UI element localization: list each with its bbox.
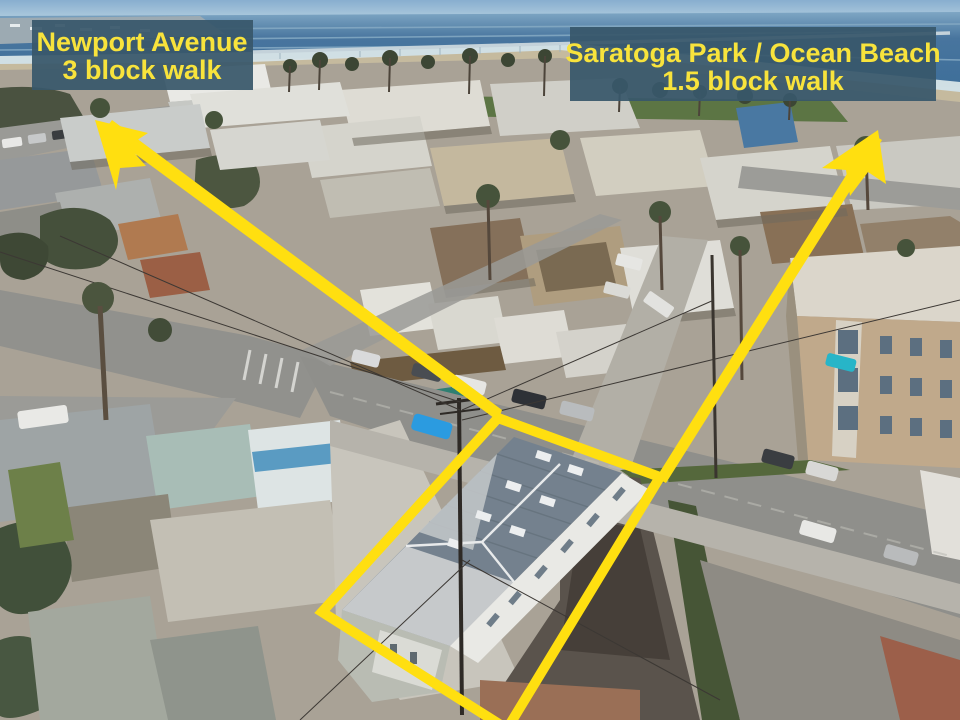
svg-text:Saratoga Park / Ocean Beach: Saratoga Park / Ocean Beach bbox=[565, 38, 940, 68]
svg-text:1.5 block walk: 1.5 block walk bbox=[662, 66, 845, 96]
svg-text:3 block walk: 3 block walk bbox=[62, 55, 222, 85]
svg-text:Newport Avenue: Newport Avenue bbox=[36, 27, 247, 57]
